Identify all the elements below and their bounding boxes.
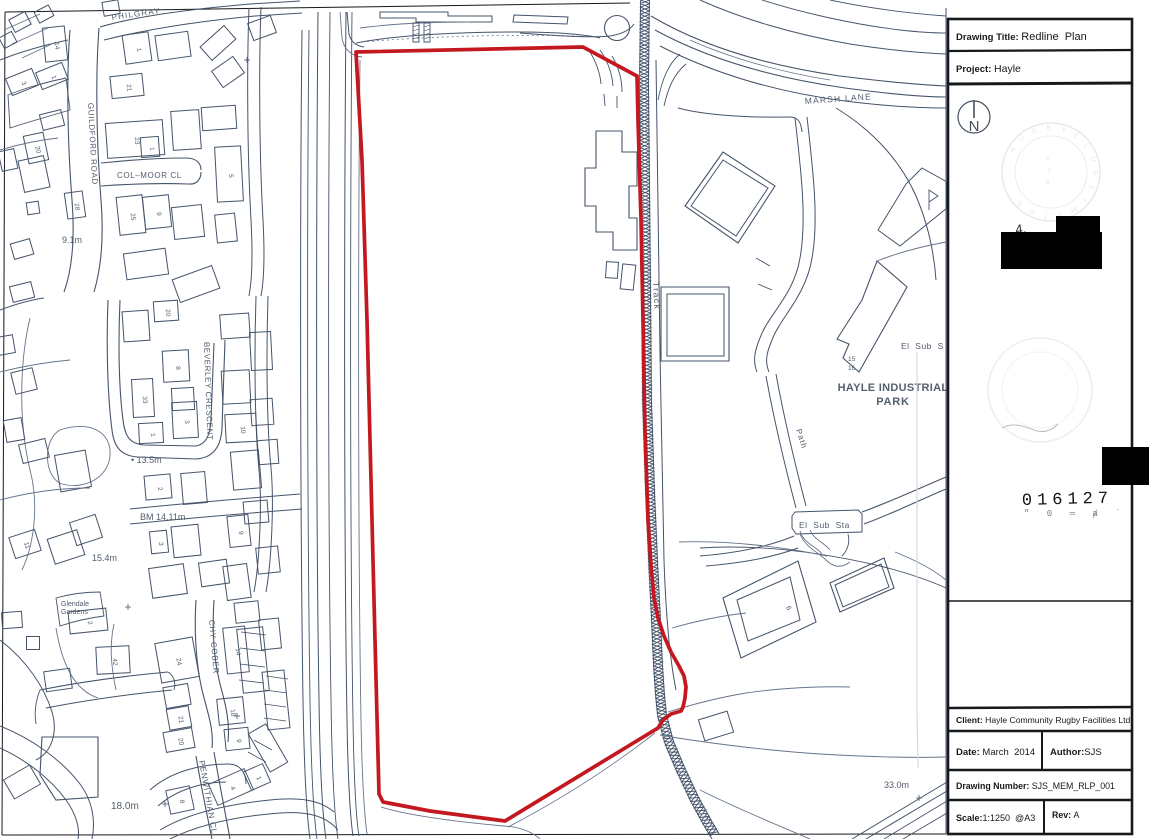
svg-text:8: 8 xyxy=(178,799,186,804)
svg-text:HAYLE INDUSTRIAL: HAYLE INDUSTRIAL xyxy=(838,382,949,394)
svg-text:3: 3 xyxy=(19,80,27,86)
svg-text:6: 6 xyxy=(784,605,792,611)
svg-text:2: 2 xyxy=(156,487,163,492)
svg-text:B: B xyxy=(1091,171,1098,176)
svg-text:1: 1 xyxy=(149,433,156,437)
svg-text:016127: 016127 xyxy=(1022,490,1114,511)
svg-text:1: 1 xyxy=(254,775,262,782)
svg-text:18.0m: 18.0m xyxy=(111,801,139,812)
svg-text:1: 1 xyxy=(135,48,142,53)
svg-text:20: 20 xyxy=(33,145,41,154)
svg-text:10: 10 xyxy=(239,426,246,434)
svg-text:N: N xyxy=(969,118,980,135)
svg-text:9: 9 xyxy=(235,739,242,744)
svg-text:Project: Hayle: Project: Hayle xyxy=(956,63,1021,75)
svg-text:Path: Path xyxy=(794,428,809,450)
svg-text:• 13.5m: • 13.5m xyxy=(131,455,162,465)
svg-text:Date: March 2014: Date: March 2014 xyxy=(956,747,1035,758)
svg-text:20: 20 xyxy=(176,738,184,747)
svg-text:COL–MOOR CL: COL–MOOR CL xyxy=(117,171,182,180)
svg-text:Client: Hayle Community Rugby: Client: Hayle Community Rugby Facilities… xyxy=(956,715,1131,725)
svg-text:33: 33 xyxy=(141,396,148,404)
svg-text:3: 3 xyxy=(183,420,190,424)
svg-text:B: B xyxy=(1046,125,1051,132)
svg-text:23: 23 xyxy=(133,137,141,145)
svg-text:PARK: PARK xyxy=(876,396,910,408)
svg-text:33.0m: 33.0m xyxy=(884,780,909,790)
svg-text:CHY COBER: CHY COBER xyxy=(207,619,221,674)
svg-text:Drawing Number: SJS_MEM_RLP_00: Drawing Number: SJS_MEM_RLP_001 xyxy=(956,781,1115,791)
svg-text:25: 25 xyxy=(129,213,137,221)
svg-text:PHILGRAY: PHILGRAY xyxy=(111,6,161,22)
svg-text:15.4m: 15.4m xyxy=(92,553,117,563)
svg-text:5: 5 xyxy=(227,174,234,178)
svg-text:1: 1 xyxy=(148,147,155,151)
svg-text:16: 16 xyxy=(848,365,856,372)
svg-text:8: 8 xyxy=(174,366,181,370)
svg-text:4: 4 xyxy=(228,785,236,792)
svg-text:Drawing Title: Redline Plan: Drawing Title: Redline Plan xyxy=(956,31,1087,43)
svg-text:21: 21 xyxy=(125,84,133,92)
svg-text:15: 15 xyxy=(848,356,856,363)
svg-text:BEVERLEY CRESCENT: BEVERLEY CRESCENT xyxy=(202,342,214,441)
svg-text:24: 24 xyxy=(174,658,182,667)
svg-text:Glendale: Glendale xyxy=(61,601,89,608)
svg-text:14: 14 xyxy=(234,648,242,656)
svg-text:El Sub Sta: El Sub Sta xyxy=(799,520,850,530)
svg-text:20: 20 xyxy=(164,309,172,317)
svg-text:9: 9 xyxy=(237,531,244,536)
svg-text:3: 3 xyxy=(157,542,164,547)
svg-text:PENWITHIAN CL: PENWITHIAN CL xyxy=(197,760,219,835)
svg-text:BM 14.11m: BM 14.11m xyxy=(140,512,185,522)
svg-text:2: 2 xyxy=(86,621,93,626)
svg-text:21: 21 xyxy=(176,716,184,725)
svg-text:Scale:1:1250 @A3: Scale:1:1250 @A3 xyxy=(956,813,1035,823)
svg-text:MARSH LANE: MARSH LANE xyxy=(804,91,872,106)
svg-text:28: 28 xyxy=(73,203,81,212)
svg-text:Rev: A: Rev: A xyxy=(1052,810,1080,820)
svg-text:ʺ 0 ═ ⱥ ˙: ʺ 0 ═ ⱥ ˙ xyxy=(1024,509,1127,519)
svg-text:9: 9 xyxy=(155,212,162,217)
svg-text:El Sub S: El Sub S xyxy=(901,341,944,351)
svg-text:Gardens: Gardens xyxy=(61,609,88,616)
svg-text:Author:SJS: Author:SJS xyxy=(1050,747,1102,758)
svg-text:9.1m: 9.1m xyxy=(62,235,82,245)
